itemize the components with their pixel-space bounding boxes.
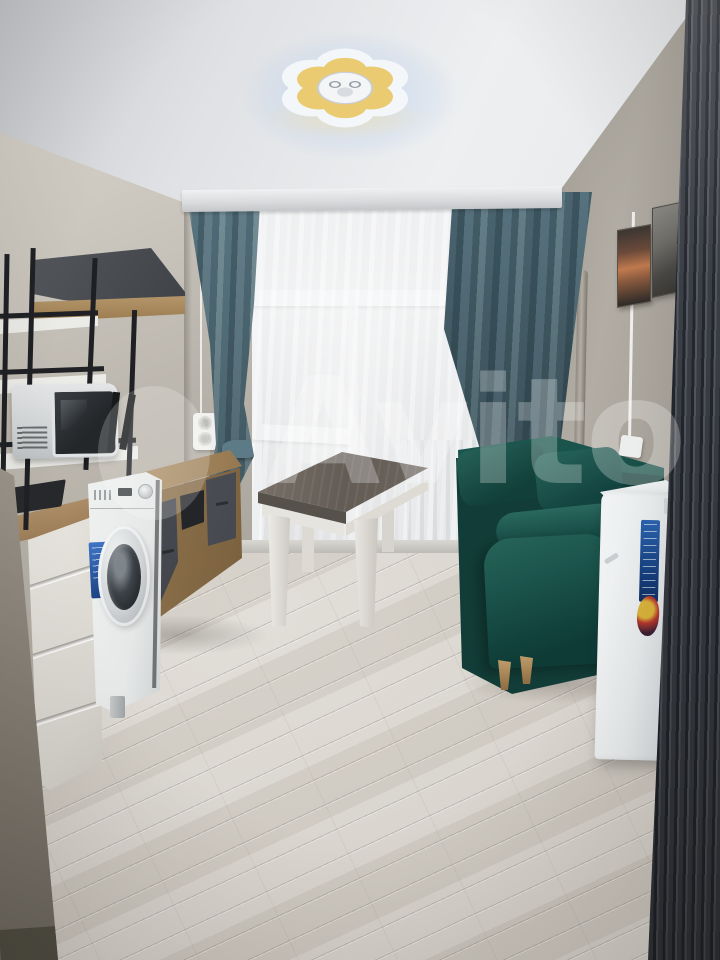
washer-leg: [110, 696, 125, 718]
washer-door-glass: [107, 544, 141, 610]
picture-frame: [617, 224, 651, 308]
microwave-vents: [17, 426, 47, 451]
curtain-cornice: [182, 186, 562, 212]
ceiling-lamp: [250, 28, 440, 146]
room-photo: Avito: [0, 0, 720, 960]
fridge-handle: [604, 548, 622, 578]
table-leg: [352, 518, 380, 628]
table-leg: [266, 514, 292, 626]
watermark-tile-fragment: [98, 386, 210, 520]
energy-label: [639, 520, 660, 602]
watermark-text: Avito: [266, 358, 685, 506]
foreground-wall-base: [0, 926, 59, 960]
